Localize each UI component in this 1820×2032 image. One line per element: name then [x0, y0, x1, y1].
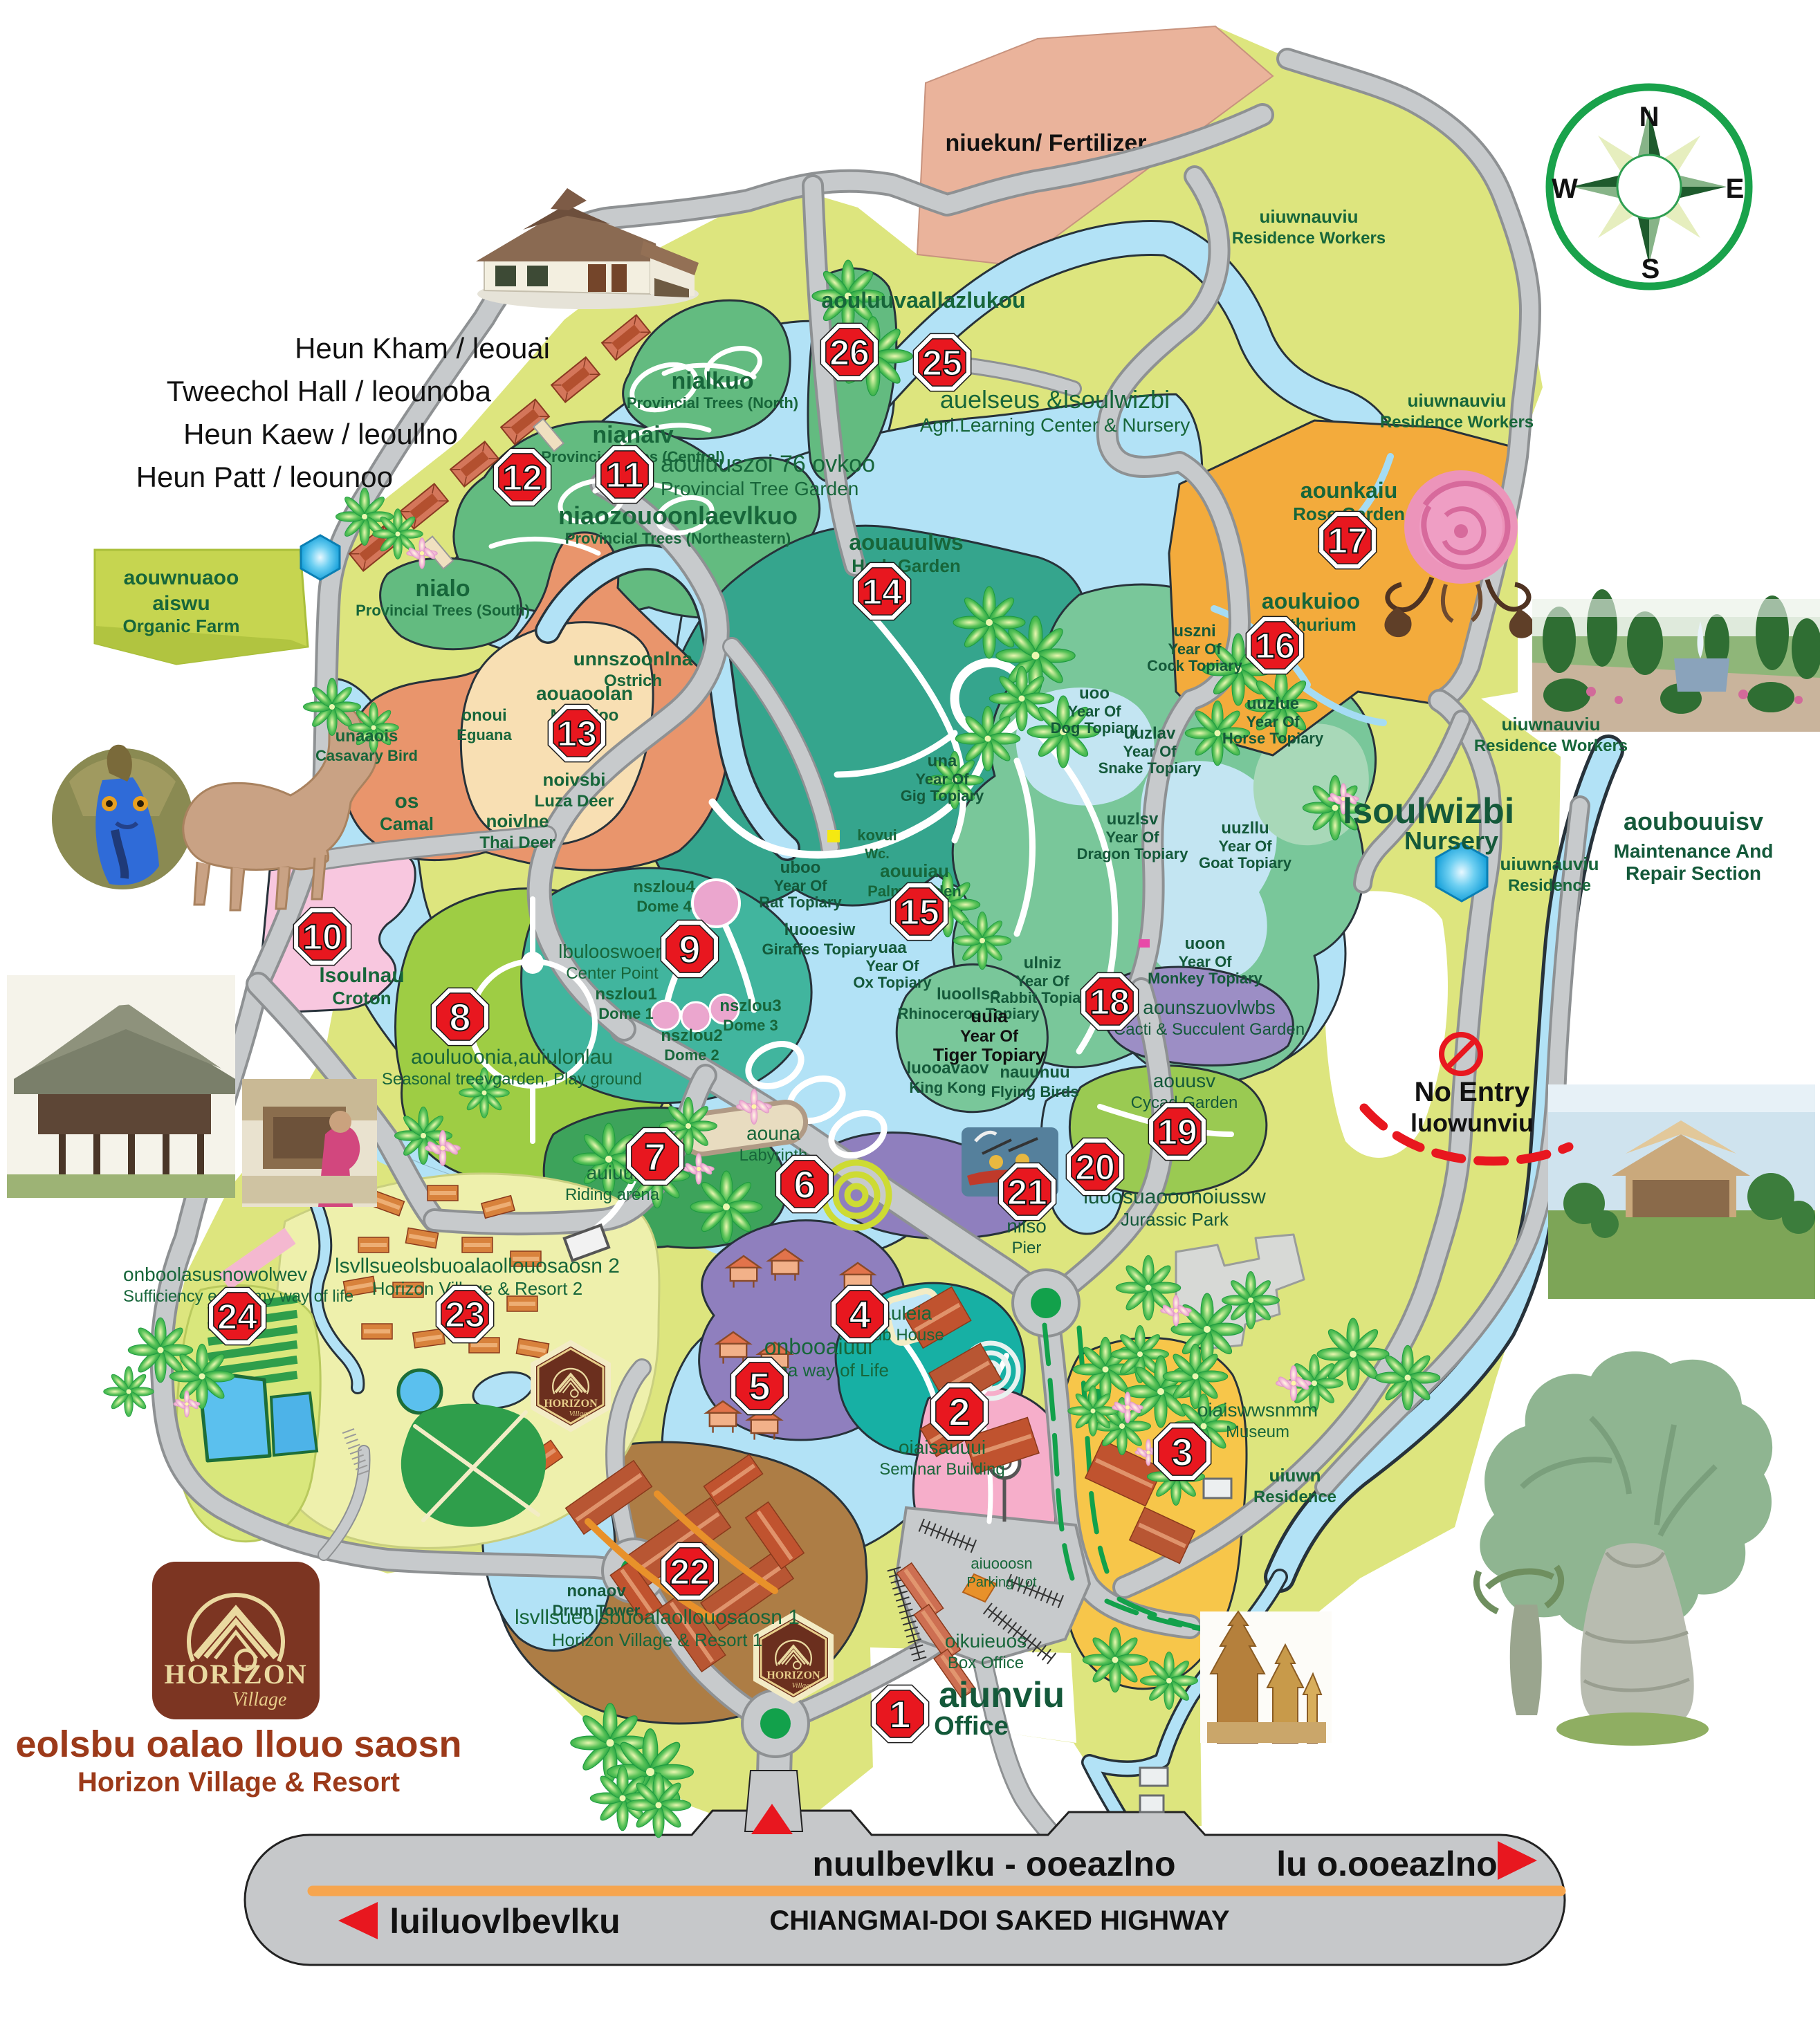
svg-text:Ox Topiary: Ox Topiary [853, 974, 932, 991]
svg-text:24: 24 [217, 1297, 257, 1338]
svg-text:lu o.ooeazlno: lu o.ooeazlno [1276, 1845, 1497, 1883]
svg-text:Rabbit Topiary: Rabbit Topiary [990, 989, 1096, 1006]
svg-text:HORIZON: HORIZON [544, 1398, 598, 1410]
svg-text:N: N [1639, 102, 1660, 132]
svg-text:aoukuioo: aoukuioo [1262, 589, 1360, 613]
svg-text:17: 17 [1327, 521, 1368, 562]
svg-text:auelseus &lsoulwizbi: auelseus &lsoulwizbi [940, 385, 1170, 414]
svg-text:aounszuovlwbs: aounszuovlwbs [1143, 997, 1275, 1018]
svg-text:nonaov: nonaov [567, 1582, 626, 1600]
svg-text:eolsbu oalao llouo saosn: eolsbu oalao llouo saosn [15, 1724, 461, 1765]
svg-text:Year Of: Year Of [1067, 703, 1121, 720]
svg-text:aouluuszoi 76 ovkoo: aouluuszoi 76 ovkoo [661, 451, 875, 477]
svg-text:Thai Deer: Thai Deer [479, 833, 555, 852]
svg-text:Parking Lot: Parking Lot [966, 1575, 1037, 1590]
svg-text:Year Of: Year Of [1218, 838, 1272, 855]
svg-text:uoon: uoon [1185, 934, 1226, 953]
svg-text:2: 2 [948, 1390, 970, 1434]
svg-text:5: 5 [748, 1365, 770, 1408]
svg-text:Residence Workers: Residence Workers [1380, 413, 1534, 432]
svg-text:Rat Topiary: Rat Topiary [759, 894, 842, 911]
svg-text:15: 15 [899, 893, 939, 933]
svg-text:aoubouuisv: aoubouuisv [1624, 807, 1763, 835]
svg-text:19: 19 [1157, 1113, 1197, 1153]
svg-text:Year Of: Year Of [960, 1027, 1019, 1046]
svg-text:Cock Topiary: Cock Topiary [1147, 657, 1243, 674]
svg-text:Provincial Trees (Northeastern: Provincial Trees (Northeastern) [565, 530, 791, 547]
svg-text:uuzlsv: uuzlsv [1107, 810, 1159, 829]
svg-text:aouauulws: aouauulws [849, 530, 963, 555]
svg-text:nialo: nialo [415, 575, 470, 602]
svg-text:E: E [1726, 174, 1745, 204]
svg-text:nialkuo: nialkuo [671, 368, 753, 394]
svg-text:uuzlue: uuzlue [1247, 694, 1299, 713]
svg-text:Village: Village [232, 1689, 287, 1710]
svg-text:Maintenance And: Maintenance And [1614, 840, 1774, 862]
svg-text:Tweechol Hall / leounoba: Tweechol Hall / leounoba [167, 375, 492, 407]
svg-text:Goat Topiary: Goat Topiary [1199, 854, 1292, 871]
svg-text:Cacti & Succulent Garden: Cacti & Succulent Garden [1114, 1020, 1305, 1039]
svg-text:niaozouoonlaevlkuo: niaozouoonlaevlkuo [558, 501, 798, 530]
svg-text:Seasonal treevgarden, Play gro: Seasonal treevgarden, Play ground [382, 1070, 642, 1089]
svg-text:Year Of: Year Of [915, 770, 969, 788]
svg-text:Jurassic Park: Jurassic Park [1121, 1209, 1229, 1230]
svg-text:uuzlav: uuzlav [1124, 724, 1176, 743]
svg-text:Casavary Bird: Casavary Bird [315, 747, 418, 764]
svg-text:luoollso: luoollso [937, 985, 1000, 1004]
svg-text:Flying Birds: Flying Birds [991, 1083, 1078, 1100]
svg-text:14: 14 [862, 573, 902, 613]
svg-text:nianaiv: nianaiv [592, 422, 673, 448]
svg-text:aouluuvaallazlukou: aouluuvaallazlukou [821, 288, 1025, 313]
svg-text:Year Of: Year Of [1123, 743, 1177, 760]
svg-text:Dome 2: Dome 2 [664, 1046, 719, 1064]
svg-text:Museum: Museum [1226, 1423, 1289, 1441]
svg-text:4: 4 [849, 1293, 870, 1336]
svg-text:Office: Office [934, 1712, 1009, 1741]
svg-text:kovui: kovui [857, 826, 897, 844]
svg-text:nszlou2: nszlou2 [661, 1026, 722, 1045]
svg-text:uoo: uoo [1079, 684, 1110, 703]
svg-text:oiaiswwsnmm: oiaiswwsnmm [1197, 1399, 1318, 1421]
svg-text:aouaoolan: aouaoolan [536, 683, 633, 704]
svg-text:luooavaov: luooavaov [907, 1059, 989, 1078]
svg-text:16: 16 [1255, 627, 1295, 667]
svg-text:Rhinoceros Topiary: Rhinoceros Topiary [898, 1005, 1040, 1022]
svg-text:Year Of: Year Of [773, 877, 827, 894]
svg-text:22: 22 [670, 1553, 710, 1593]
svg-text:King Kong: King Kong [909, 1079, 986, 1096]
svg-text:nszlou1: nszlou1 [595, 985, 656, 1004]
svg-text:Residence: Residence [1253, 1488, 1336, 1506]
svg-text:luiluovlbevlku: luiluovlbevlku [389, 1902, 620, 1941]
svg-text:aiuooosn: aiuooosn [971, 1555, 1032, 1572]
svg-text:Village: Village [792, 1681, 814, 1690]
svg-text:Nursery: Nursery [1404, 826, 1498, 855]
svg-text:CHIANGMAI-DOI SAKED HIGHWAY: CHIANGMAI-DOI SAKED HIGHWAY [769, 1905, 1230, 1936]
svg-text:Repair Section: Repair Section [1626, 862, 1761, 884]
svg-text:aouwnuaoo: aouwnuaoo [124, 566, 239, 589]
svg-text:HORIZON: HORIZON [766, 1670, 820, 1681]
svg-text:nszlou3: nszlou3 [719, 997, 781, 1015]
svg-text:Provincial Tree Garden: Provincial Tree Garden [661, 478, 858, 499]
svg-text:lsoulwizbi: lsoulwizbi [1343, 791, 1514, 831]
svg-text:Residence Workers: Residence Workers [1232, 229, 1386, 248]
svg-text:Eguana: Eguana [457, 726, 512, 743]
svg-text:luooesiw: luooesiw [784, 921, 856, 939]
svg-text:25: 25 [922, 344, 962, 384]
svg-text:noivlne: noivlne [486, 811, 549, 831]
svg-text:Year Of: Year Of [1168, 640, 1222, 658]
svg-text:noivsbi: noivsbi [542, 769, 605, 790]
svg-text:niuekun/ Fertilizer: niuekun/ Fertilizer [946, 130, 1147, 156]
svg-text:Year Of: Year Of [1246, 713, 1300, 730]
svg-text:Year Of: Year Of [1015, 972, 1069, 990]
svg-text:11: 11 [606, 456, 644, 496]
svg-text:23: 23 [445, 1295, 485, 1336]
svg-text:18: 18 [1090, 983, 1130, 1023]
svg-text:Dragon Topiary: Dragon Topiary [1077, 845, 1189, 862]
svg-text:Residence Workers: Residence Workers [1474, 737, 1628, 755]
svg-text:6: 6 [793, 1163, 815, 1206]
svg-text:aiswu: aiswu [152, 592, 210, 615]
svg-text:Luza Deer: Luza Deer [535, 792, 614, 811]
svg-text:Agri.Learning Center & Nursery: Agri.Learning Center & Nursery [920, 414, 1191, 436]
svg-text:Heun Patt / leounoo: Heun Patt / leounoo [136, 461, 393, 493]
svg-text:aiunviu: aiunviu [939, 1675, 1065, 1715]
svg-text:luowunviu: luowunviu [1410, 1109, 1534, 1137]
svg-text:Village: Village [569, 1410, 591, 1418]
svg-text:21: 21 [1007, 1173, 1047, 1213]
svg-text:Box Office: Box Office [948, 1654, 1024, 1672]
svg-text:20: 20 [1075, 1148, 1115, 1188]
svg-text:Horse Topiary: Horse Topiary [1222, 730, 1324, 747]
svg-text:uuzllu: uuzllu [1221, 819, 1269, 838]
svg-text:Dome 4: Dome 4 [636, 898, 692, 915]
svg-text:os: os [394, 790, 419, 813]
svg-text:aounkaiu: aounkaiu [1300, 478, 1397, 503]
svg-text:onoui: onoui [461, 706, 506, 725]
svg-text:nszlou4: nszlou4 [633, 878, 695, 896]
svg-text:Organic Farm: Organic Farm [122, 616, 239, 636]
svg-text:9: 9 [679, 927, 700, 971]
svg-text:Wc.: Wc. [865, 847, 890, 862]
svg-text:uiuwnauviu: uiuwnauviu [1500, 853, 1599, 874]
svg-text:26: 26 [829, 333, 870, 373]
svg-text:Heun Kham / leouai: Heun Kham / leouai [295, 332, 550, 364]
svg-text:lsoulnau: lsoulnau [319, 964, 404, 987]
svg-text:uiuwnauviu: uiuwnauviu [1408, 390, 1507, 411]
svg-text:Year Of: Year Of [1178, 953, 1232, 970]
svg-text:8: 8 [449, 995, 470, 1039]
svg-text:onboolasusnowolwev: onboolasusnowolwev [123, 1264, 307, 1285]
svg-text:Gig Topiary: Gig Topiary [901, 787, 984, 804]
svg-text:Pier: Pier [1012, 1239, 1042, 1257]
svg-text:una: una [928, 752, 957, 770]
svg-text:uiuwn: uiuwn [1269, 1465, 1321, 1486]
svg-text:1: 1 [889, 1692, 910, 1736]
svg-text:lsvllsueolsbuoalaollouosaosn 1: lsvllsueolsbuoalaollouosaosn 1 [515, 1606, 800, 1629]
svg-text:ulniz: ulniz [1024, 954, 1062, 972]
svg-text:3: 3 [1171, 1430, 1193, 1474]
svg-text:uaa: uaa [878, 939, 907, 957]
svg-text:Year Of: Year Of [865, 957, 919, 975]
svg-text:uiuwnauviu: uiuwnauviu [1502, 714, 1601, 735]
svg-text:nuulbevlku - ooeazlno: nuulbevlku - ooeazlno [812, 1845, 1175, 1883]
svg-text:Provincial Trees (North): Provincial Trees (North) [627, 394, 798, 412]
svg-text:S: S [1642, 254, 1660, 284]
svg-text:No Entry: No Entry [1415, 1077, 1530, 1107]
svg-text:uiuwnauviu: uiuwnauviu [1260, 206, 1359, 227]
svg-text:uboo: uboo [780, 858, 821, 877]
svg-text:HORIZON: HORIZON [164, 1659, 307, 1690]
svg-text:Snake Topiary: Snake Topiary [1099, 759, 1202, 777]
svg-text:Monkey Topiary: Monkey Topiary [1148, 970, 1263, 987]
svg-text:Seminar Building: Seminar Building [879, 1460, 1004, 1479]
svg-text:Heun Kaew / leoullno: Heun Kaew / leoullno [183, 418, 458, 450]
svg-text:lsvllsueolsbuoalaollouosaosn 2: lsvllsueolsbuoalaollouosaosn 2 [335, 1255, 620, 1277]
svg-text:nauunuu: nauunuu [1000, 1063, 1069, 1082]
svg-text:Croton: Croton [332, 988, 391, 1008]
svg-text:Horizon Village & Resort: Horizon Village & Resort [77, 1767, 400, 1798]
svg-text:unaaois: unaaois [335, 727, 398, 746]
svg-text:Giraffes Topiary: Giraffes Topiary [762, 941, 878, 958]
svg-text:W: W [1552, 174, 1578, 204]
svg-text:aouuiau: aouuiau [880, 860, 949, 881]
svg-text:oikuieuos: oikuieuos [945, 1630, 1027, 1652]
svg-text:Horizon Village & Resort 1: Horizon Village & Resort 1 [552, 1629, 762, 1650]
svg-text:7: 7 [644, 1135, 665, 1179]
svg-text:Dome 3: Dome 3 [723, 1017, 778, 1034]
svg-text:12: 12 [502, 459, 542, 499]
svg-text:13: 13 [557, 714, 597, 755]
svg-text:aouluoonia,auiulonlau: aouluoonia,auiulonlau [411, 1046, 613, 1069]
svg-text:aouusv: aouusv [1153, 1070, 1215, 1091]
svg-text:Dome 1: Dome 1 [598, 1005, 653, 1022]
svg-text:lbulooswoen: lbulooswoen [558, 941, 666, 962]
svg-text:aouna: aouna [746, 1123, 800, 1144]
svg-text:Year Of: Year Of [1105, 829, 1159, 846]
svg-text:unnszoonlna: unnszoonlna [573, 648, 693, 669]
svg-text:uszni: uszni [1173, 622, 1215, 640]
svg-text:10: 10 [302, 918, 342, 958]
svg-text:uuia: uuia [971, 1006, 1008, 1026]
svg-text:Center Point: Center Point [566, 964, 659, 983]
svg-text:Camal: Camal [380, 813, 434, 834]
svg-text:Residence: Residence [1508, 876, 1591, 895]
svg-text:Riding arena: Riding arena [565, 1185, 660, 1204]
svg-text:Provincial Trees (South): Provincial Trees (South) [356, 602, 530, 619]
